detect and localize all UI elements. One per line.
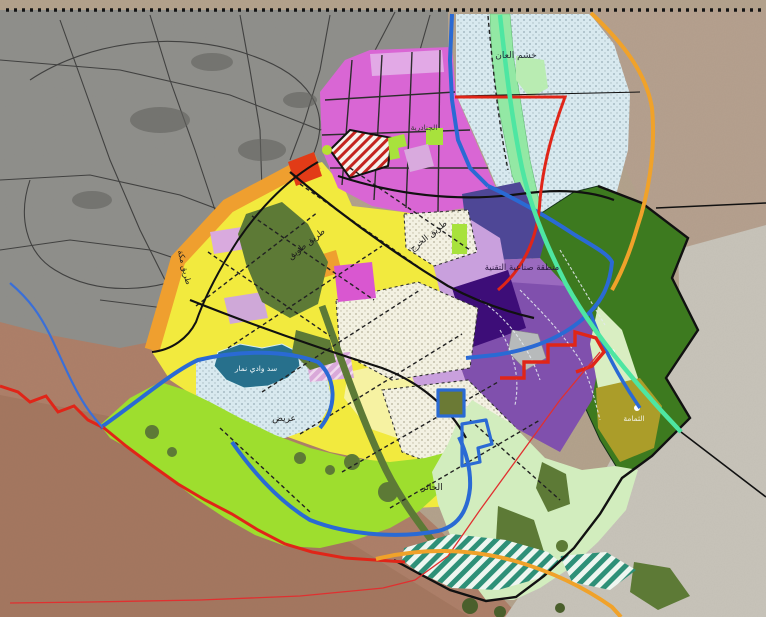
planning-map: خشم العان الجنادرية طريق طويق طريق الخرج… [0,0,766,617]
blue-outlined-parcel [438,390,464,416]
label-al-hair: الحائر [420,483,442,493]
label-tech-zone: منطقة صناعية التقنية [485,263,559,273]
label-janadriyah: الجنادرية [411,123,438,132]
lime-dot [322,145,332,155]
label-khashm-alaan: خشم العان [495,51,536,61]
label-namar-dam: سد وادي نمار [234,364,277,373]
magenta-patch [334,262,376,302]
label-thumamah: الثمامة [623,414,644,423]
label-areed: عريض [272,414,296,424]
map-canvas: خشم العان الجنادرية طريق طويق طريق الخرج… [0,0,766,617]
